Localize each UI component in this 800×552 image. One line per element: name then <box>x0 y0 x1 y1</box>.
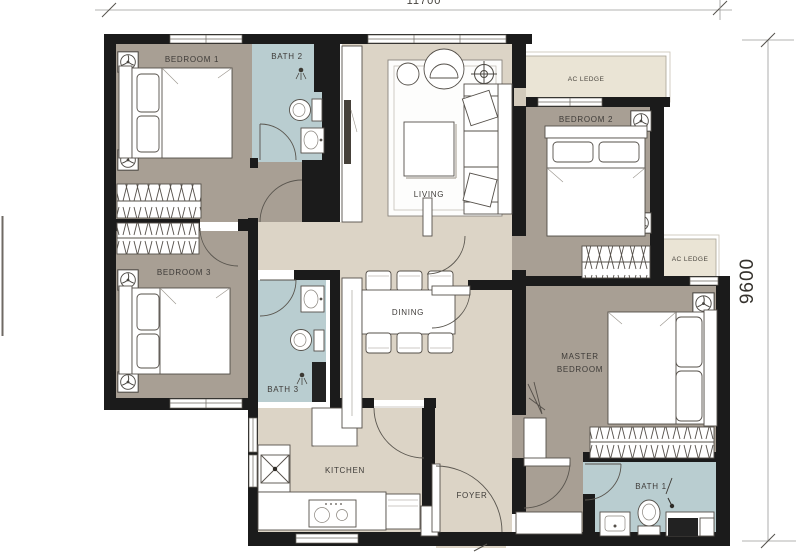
wall-kitchen-door-stub <box>424 398 436 408</box>
wall-dining-left <box>330 270 340 408</box>
floor-plan: BEDROOM 1 BATH 2 LIVING BEDROOM 2 AC LED… <box>0 0 800 552</box>
bath1-label: BATH 1 <box>635 482 667 491</box>
ac-ledge-right-label: AC LEDGE <box>672 256 709 263</box>
floor-plan-svg: BEDROOM 1 BATH 2 LIVING BEDROOM 2 AC LED… <box>0 0 800 552</box>
bed <box>545 126 647 236</box>
bed <box>119 286 230 374</box>
toilet-icon <box>638 500 660 535</box>
living-label: LIVING <box>414 190 444 199</box>
kitchen-label: KITCHEN <box>325 466 365 475</box>
bath2-label: BATH 2 <box>271 52 303 61</box>
wardrobe <box>590 427 714 458</box>
built-in-cabinet <box>516 512 582 534</box>
bedroom3-label: BEDROOM 3 <box>157 268 211 277</box>
wall-bath3-top-b <box>294 270 330 280</box>
wall-living-right <box>512 34 526 236</box>
wardrobe <box>117 184 201 218</box>
window-kitchen-bottom <box>296 534 358 543</box>
dining-chairs-bottom <box>366 333 453 353</box>
entrance-door-leaf <box>432 464 440 532</box>
side-table <box>397 63 419 85</box>
window-master <box>690 277 718 285</box>
dimension-top-value: 11700 <box>407 0 442 7</box>
window-living <box>368 35 506 43</box>
coffee-table <box>404 122 456 178</box>
wall-bath2-right <box>322 34 340 170</box>
sink-icon <box>600 512 630 536</box>
wall-right <box>716 276 730 546</box>
toilet-icon <box>291 330 325 352</box>
bath3-shower-screen <box>312 362 326 402</box>
armchair <box>424 49 464 89</box>
master-door-leaf <box>524 458 570 466</box>
tv-console <box>342 46 362 222</box>
sideboard <box>342 278 362 428</box>
ceiling-fan-icon <box>118 372 138 392</box>
bedroom2-label: BEDROOM 2 <box>559 115 613 124</box>
wardrobe <box>582 246 650 278</box>
foyer-label: FOYER <box>456 491 487 500</box>
sink-icon <box>301 128 324 153</box>
bedroom1-label: BEDROOM 1 <box>165 55 219 64</box>
sink-icon <box>301 286 324 312</box>
window-bedroom1 <box>170 35 242 43</box>
window-bedroom3 <box>170 399 242 408</box>
toilet-icon <box>290 99 323 121</box>
bedroom2-door-gap <box>512 236 526 270</box>
wall-bath2-right-b <box>314 34 322 92</box>
wall-bath3-top-a <box>248 270 258 280</box>
bed <box>608 310 717 426</box>
dining-label: DINING <box>392 308 424 317</box>
wall-corridor-bottom <box>468 280 512 290</box>
bed <box>119 66 232 158</box>
bedroom-hall-floor <box>252 222 340 270</box>
wall-bath1-left <box>583 494 595 538</box>
corridor-door2-leaf <box>432 286 470 295</box>
wall-bedroom2-right <box>650 97 664 250</box>
wardrobe <box>117 223 199 254</box>
wall-bath2-bottom-stub <box>250 158 258 168</box>
wall-niche <box>514 88 526 106</box>
fridge-icon <box>386 494 420 529</box>
window-bedroom2 <box>538 98 602 106</box>
stove-icon <box>309 500 356 527</box>
dimension-right-value: 9600 <box>737 258 758 304</box>
master-label-line1: MASTER <box>561 352 599 361</box>
corridor-door-leaf <box>423 198 432 236</box>
bath3-label: BATH 3 <box>267 385 299 394</box>
master-label-line2: BEDROOM <box>557 365 603 374</box>
kitchen-sink-icon <box>261 455 289 483</box>
ac-ledge-top-label: AC LEDGE <box>568 76 605 83</box>
wall-bedroom3-right <box>248 218 258 404</box>
wall-master-left-upper <box>512 270 526 415</box>
sofa <box>462 84 512 214</box>
